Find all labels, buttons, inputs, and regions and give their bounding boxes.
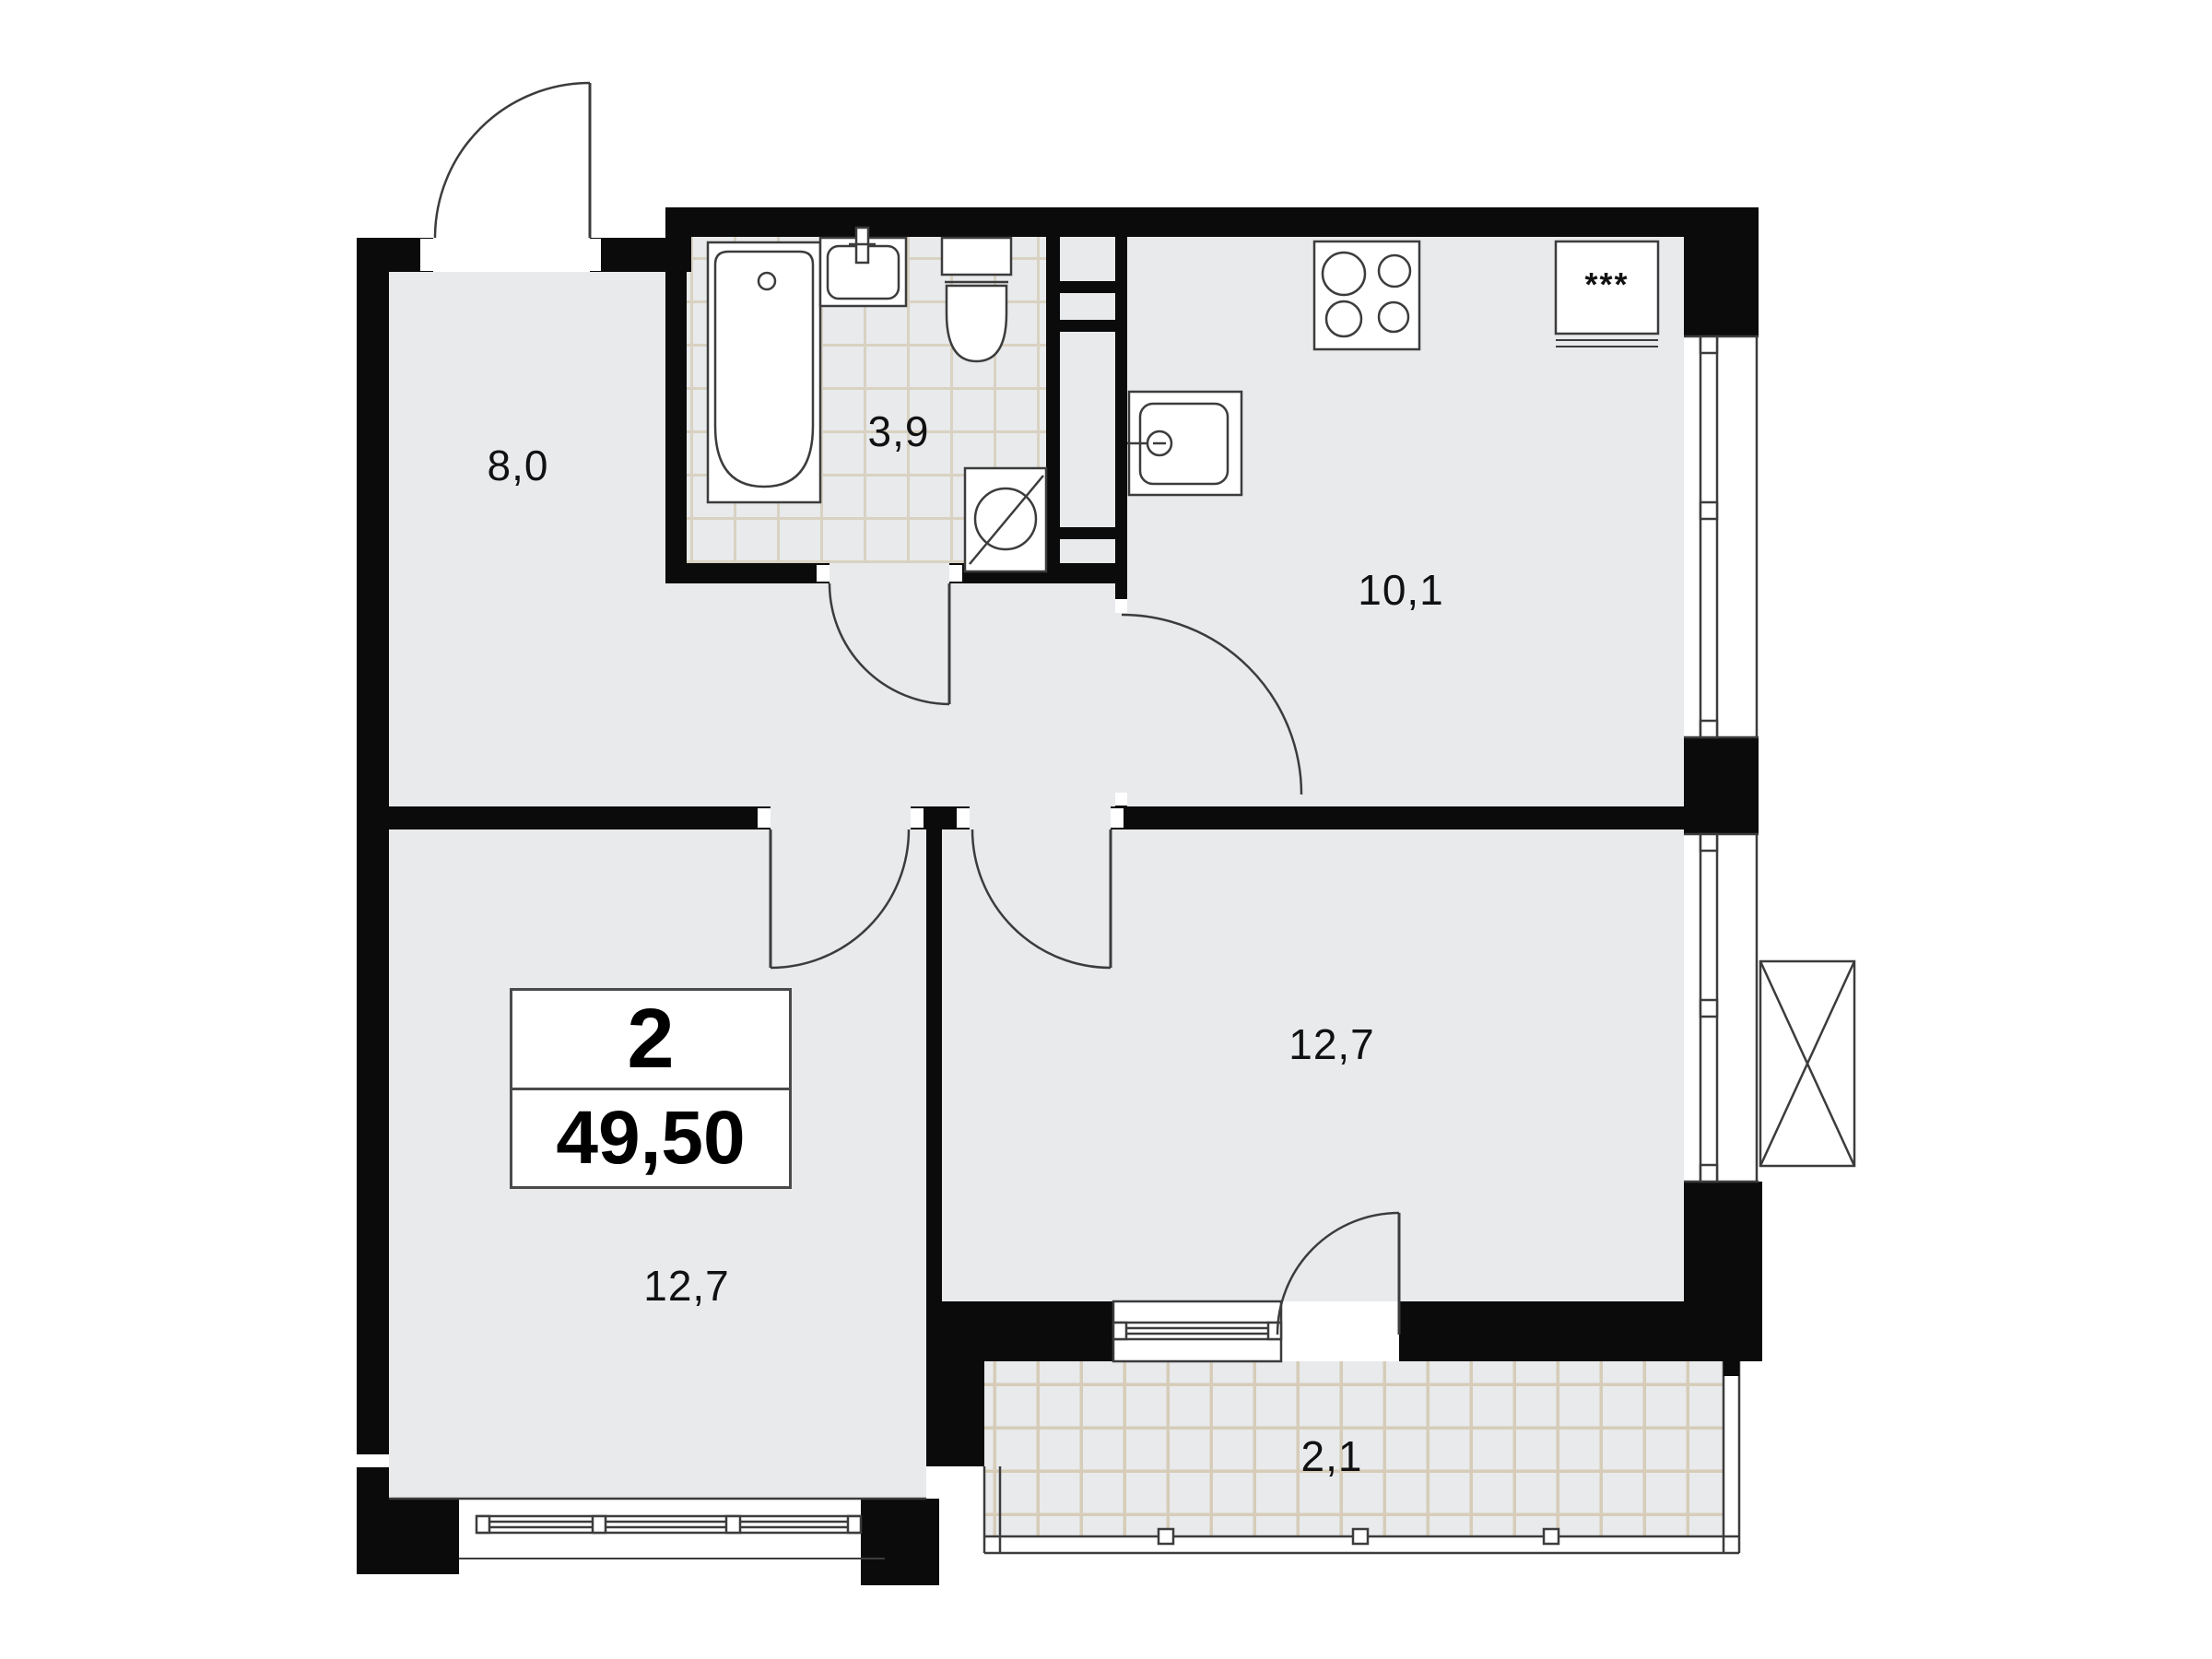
living-room-area-label: 12,7 <box>643 1261 730 1311</box>
bathroom-sink <box>820 228 906 306</box>
washing-machine <box>965 468 1046 571</box>
bedroom-door-gap <box>970 806 1111 829</box>
rooms-count: 2 <box>512 991 789 1090</box>
kitchen-bottom-wall <box>1111 806 1684 829</box>
rooms-divider-wall <box>926 829 942 1301</box>
fridge-stars-icon: *** <box>1556 265 1658 304</box>
balcony-window <box>1113 1301 1281 1361</box>
shaft-rung-2 <box>1057 320 1115 332</box>
floor-plan: 8,0 3,9 10,1 12,7 12,7 2,1 2 49,50 *** <box>0 0 2212 1659</box>
entrance-door <box>435 83 590 238</box>
shaft-rung-1 <box>1057 281 1115 293</box>
kitchen-door-gap <box>1115 613 1127 793</box>
ac-basket <box>1760 961 1854 1166</box>
living-room-window <box>389 1499 926 1559</box>
bottom-wall-right-pier <box>861 1499 939 1585</box>
railing-end-post <box>1724 1361 1739 1376</box>
hallway-area-label: 8,0 <box>488 441 549 490</box>
kitchen-window <box>1684 336 1759 737</box>
bottom-wall-left-corner <box>357 1499 459 1574</box>
kitchen-area-label: 10,1 <box>1358 565 1444 615</box>
bathroom-left-wall <box>665 272 687 583</box>
bedroom-window <box>1684 834 1759 1182</box>
hall-bottom-wall-left <box>389 806 771 829</box>
stove <box>1314 241 1419 349</box>
left-outer-wall <box>357 238 389 1574</box>
shaft-rung-3 <box>1057 527 1115 539</box>
bathroom-door-gap <box>829 563 949 583</box>
bathroom-bottom-wall-left <box>665 563 829 583</box>
balcony-left-pier <box>926 1361 984 1466</box>
toilet <box>942 238 1011 361</box>
total-area: 49,50 <box>512 1090 789 1186</box>
bathroom-area-label: 3,9 <box>868 406 930 456</box>
top-wall-step <box>665 237 691 272</box>
bedroom-bottom-wall-left <box>926 1301 1113 1361</box>
living-room-door-gap <box>771 806 911 829</box>
bedroom-bottom-wall-right <box>1399 1301 1762 1361</box>
apartment-info-box: 2 49,50 <box>510 988 792 1189</box>
entrance-wall-right <box>590 238 665 272</box>
wall-joint-notch <box>357 1454 389 1467</box>
kitchen-sink <box>1127 392 1241 495</box>
bathtub <box>708 242 820 502</box>
top-outer-wall <box>665 207 1684 237</box>
floor-plan-drawing <box>0 0 2212 1659</box>
top-right-corner <box>1684 207 1759 336</box>
balcony-area-label: 2,1 <box>1301 1431 1363 1481</box>
hallway-floor-lower <box>389 583 1115 806</box>
right-wall-pier <box>1684 737 1759 834</box>
bedroom-area-label: 12,7 <box>1288 1019 1375 1069</box>
kitchen-left-wall <box>1115 237 1127 613</box>
